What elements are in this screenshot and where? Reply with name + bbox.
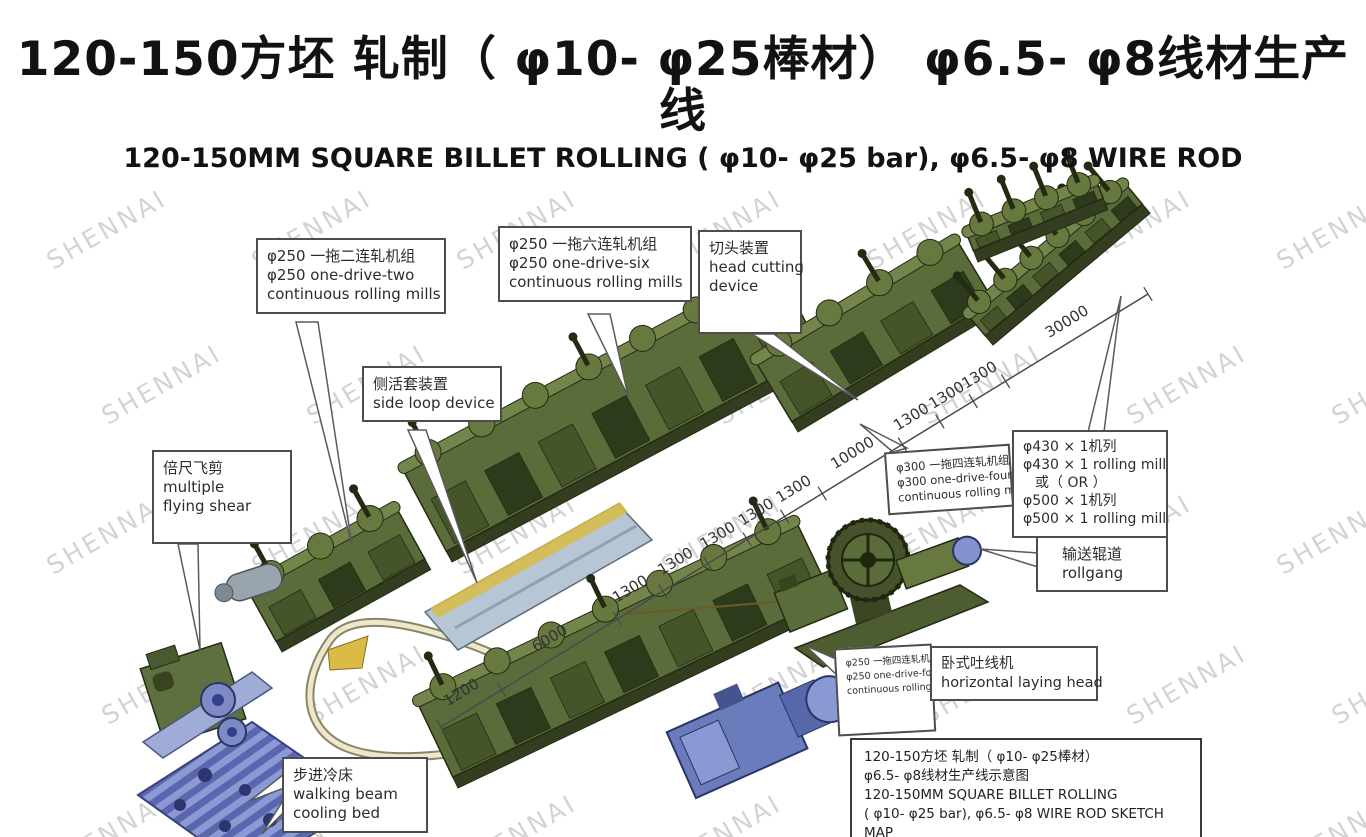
callout-line: 侧活套装置 xyxy=(373,375,491,394)
callout-line: cooling bed xyxy=(293,804,417,823)
legend-line: 120-150MM SQUARE BILLET ROLLING xyxy=(864,786,1188,805)
callout-line: rollgang xyxy=(1062,564,1157,583)
callout-one-drive-four-300: φ300 一拖四连轧机组 φ300 one-drive-four continu… xyxy=(884,444,1014,515)
legend-line: φ6.5- φ8线材生产线示意图 xyxy=(864,767,1188,786)
callout-line: continuous rolling mills xyxy=(509,273,681,292)
dimension-label: 30000 xyxy=(1042,301,1092,341)
dimension-label: 1300 xyxy=(890,399,932,434)
callout-line: flying shear xyxy=(163,497,281,516)
callout-line: φ430 × 1 rolling mill xyxy=(1023,457,1157,475)
callout-line: horizontal laying head xyxy=(941,674,1087,693)
callout-cooling-bed: 步进冷床 walking beam cooling bed xyxy=(282,757,428,833)
legend-line: 120-150方坯 轧制（ φ10- φ25棒材） xyxy=(864,748,1188,767)
callout-line: φ250 一拖六连轧机组 xyxy=(509,235,681,254)
topright-train-illustration xyxy=(938,149,1153,348)
dimension-label: 1300 xyxy=(958,357,1000,392)
callout-430-500-mill: φ430 × 1机列 φ430 × 1 rolling mill 或（ OR ）… xyxy=(1012,430,1168,538)
callout-line: φ250 one-drive-six xyxy=(509,254,681,273)
callout-line: side loop device xyxy=(373,394,491,413)
title-chinese: 120-150方坯 轧制（ φ10- φ25棒材） φ6.5- φ8线材生产线 xyxy=(0,34,1366,137)
callout-line: 步进冷床 xyxy=(293,766,417,785)
callout-line: φ500 × 1机列 xyxy=(1023,493,1157,511)
page-title: 120-150方坯 轧制（ φ10- φ25棒材） φ6.5- φ8线材生产线 … xyxy=(0,34,1366,174)
callout-line: device xyxy=(709,277,791,296)
callout-line: φ500 × 1 rolling mill xyxy=(1023,511,1157,529)
callout-line: φ430 × 1机列 xyxy=(1023,439,1157,457)
callout-line: continuous rolling mills xyxy=(267,285,435,304)
callout-line: φ250 一拖二连轧机组 xyxy=(267,247,435,266)
legend-box: 120-150方坯 轧制（ φ10- φ25棒材） φ6.5- φ8线材生产线示… xyxy=(850,738,1202,837)
callout-one-drive-two: φ250 一拖二连轧机组 φ250 one-drive-two continuo… xyxy=(256,238,446,314)
callout-rollgang: 输送辊道 rollgang xyxy=(1036,536,1168,592)
callout-one-drive-six: φ250 一拖六连轧机组 φ250 one-drive-six continuo… xyxy=(498,226,692,302)
title-english: 120-150MM SQUARE BILLET ROLLING ( φ10- φ… xyxy=(0,143,1366,174)
callout-line: head cutting xyxy=(709,258,791,277)
callout-head-cutting: 切头装置 head cutting device xyxy=(698,230,802,334)
callout-line: 倍尺飞剪 xyxy=(163,459,281,478)
callout-line: 输送辊道 xyxy=(1062,545,1157,564)
legend-line: ( φ10- φ25 bar), φ6.5- φ8 WIRE ROD SKETC… xyxy=(864,805,1188,837)
callout-line: walking beam xyxy=(293,785,417,804)
callout-line: φ250 one-drive-two xyxy=(267,266,435,285)
callout-line: 切头装置 xyxy=(709,239,791,258)
callout-line: 卧式吐线机 xyxy=(941,655,1087,674)
callout-line: multiple xyxy=(163,478,281,497)
dimension-label: 10000 xyxy=(827,433,877,473)
callout-line: 或（ OR ） xyxy=(1023,475,1157,493)
rolling-mill-diagram-page: SHENNAISHENNAISHENNAISHENNAISHENNAISHENN… xyxy=(0,0,1366,837)
callout-side-loop: 侧活套装置 side loop device xyxy=(362,366,502,422)
dimension-label: 1300 xyxy=(773,471,815,506)
callout-one-drive-four-250: φ250 一拖四连轧机组 φ250 one-drive-four continu… xyxy=(834,643,936,736)
callout-laying-head: 卧式吐线机 horizontal laying head xyxy=(930,646,1098,701)
callout-flying-shear: 倍尺飞剪 multiple flying shear xyxy=(152,450,292,544)
